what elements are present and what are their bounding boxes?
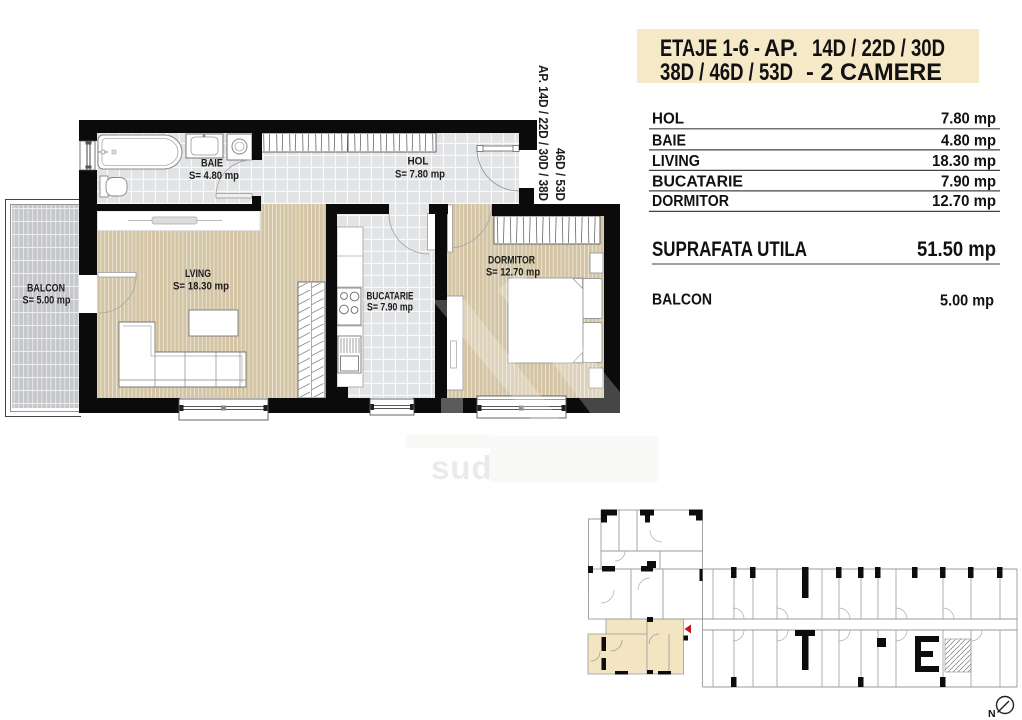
svg-text:7.90 mp: 7.90 mp — [941, 173, 996, 190]
svg-text:S= 7.90 mp: S= 7.90 mp — [367, 302, 413, 314]
svg-text:S= 5.00 mp: S= 5.00 mp — [23, 295, 71, 307]
svg-text:AP.: AP. — [764, 35, 798, 62]
svg-text:12.70 mp: 12.70 mp — [932, 193, 996, 210]
svg-text:- 2 CAMERE: - 2 CAMERE — [806, 59, 942, 86]
svg-text:18.30 mp: 18.30 mp — [932, 153, 996, 170]
svg-text:46D / 53D: 46D / 53D — [553, 148, 568, 201]
svg-text:S= 4.80 mp: S= 4.80 mp — [189, 170, 239, 182]
svg-text:BUCATARIE: BUCATARIE — [652, 173, 743, 190]
svg-text:sud: sud — [431, 449, 493, 486]
svg-text:38D / 46D / 53D: 38D / 46D / 53D — [660, 59, 793, 86]
svg-text:DORMITOR: DORMITOR — [652, 193, 729, 210]
svg-text:14D / 22D / 30D: 14D / 22D / 30D — [812, 35, 945, 62]
svg-text:ETAJE 1-6 -: ETAJE 1-6 - — [660, 35, 760, 62]
svg-text:LIVING: LIVING — [652, 153, 700, 170]
svg-text:HOL: HOL — [652, 111, 684, 128]
svg-text:BALCON: BALCON — [652, 292, 712, 309]
svg-text:SUPRAFATA UTILA: SUPRAFATA UTILA — [652, 238, 807, 261]
svg-text:AP. 14D / 22D / 30D / 38D: AP. 14D / 22D / 30D / 38D — [536, 65, 551, 201]
svg-text:4.80 mp: 4.80 mp — [941, 133, 996, 150]
svg-text:S= 7.80 mp: S= 7.80 mp — [395, 169, 445, 181]
svg-text:BAIE: BAIE — [201, 158, 223, 170]
svg-text:S= 18.30 mp: S= 18.30 mp — [173, 281, 229, 293]
svg-text:51.50 mp: 51.50 mp — [917, 238, 996, 261]
svg-text:BAIE: BAIE — [652, 133, 686, 150]
svg-text:S= 12.70 mp: S= 12.70 mp — [486, 267, 540, 279]
svg-text:BALCON: BALCON — [27, 283, 65, 295]
svg-text:HOL: HOL — [408, 156, 429, 168]
svg-text:5.00 mp: 5.00 mp — [940, 293, 994, 310]
svg-text:N: N — [988, 708, 996, 720]
svg-text:LVING: LVING — [185, 268, 211, 280]
svg-text:DORMITOR: DORMITOR — [488, 255, 535, 267]
svg-text:7.80 mp: 7.80 mp — [941, 111, 996, 128]
